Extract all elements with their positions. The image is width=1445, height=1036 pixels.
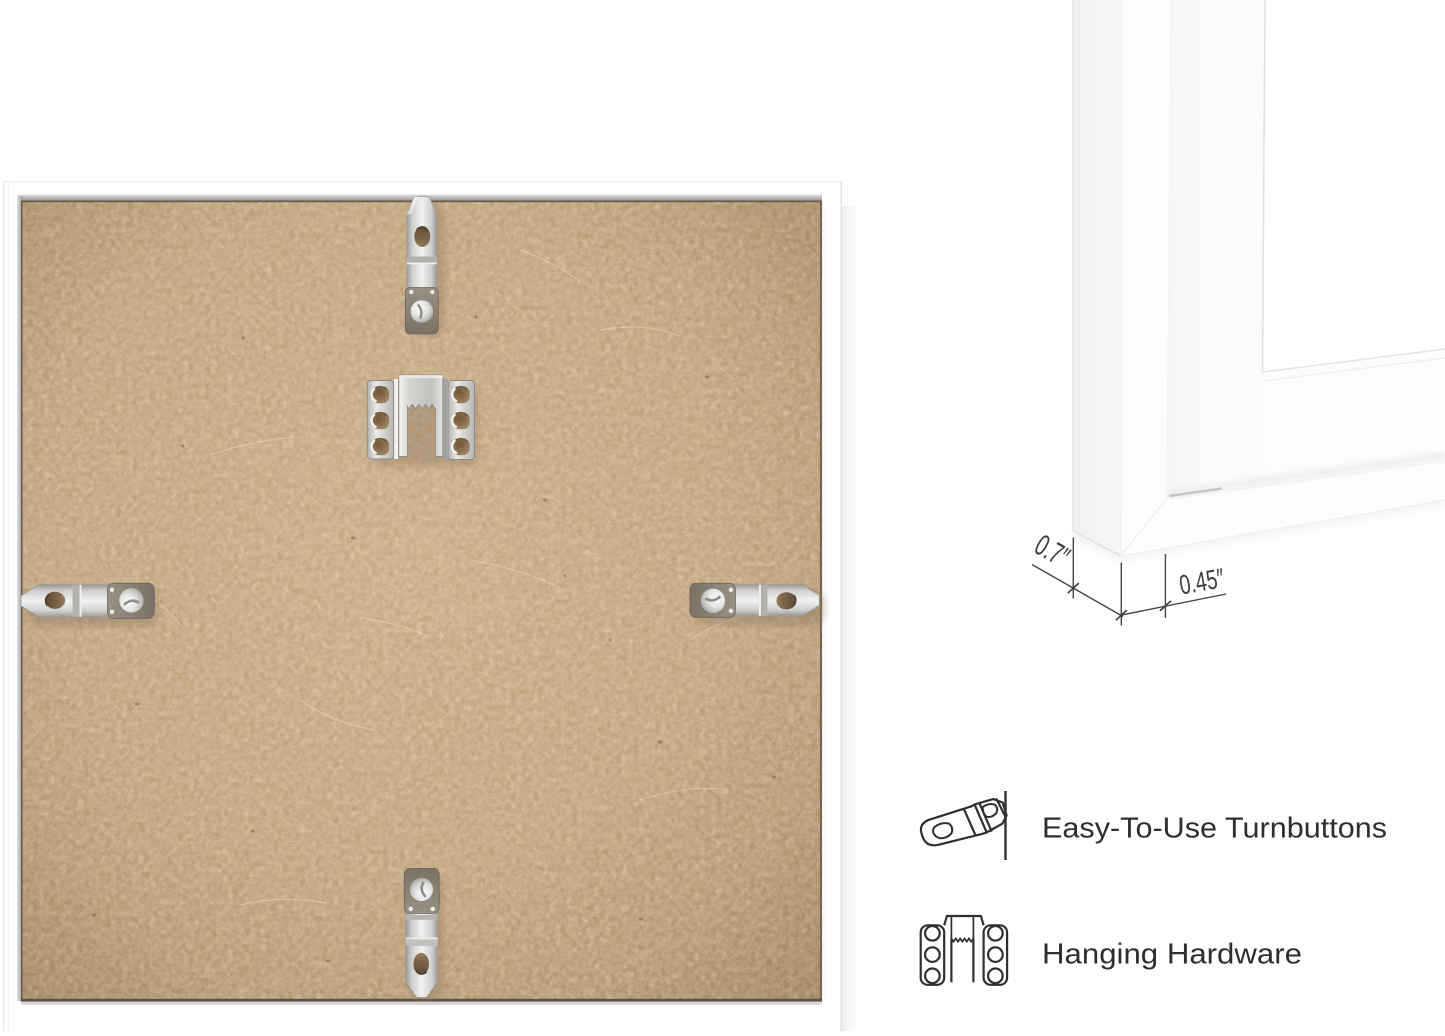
svg-text:Easy-To-Use Turnbuttons: Easy-To-Use Turnbuttons xyxy=(1042,812,1387,844)
svg-text:Hanging Hardware: Hanging Hardware xyxy=(1042,939,1302,971)
